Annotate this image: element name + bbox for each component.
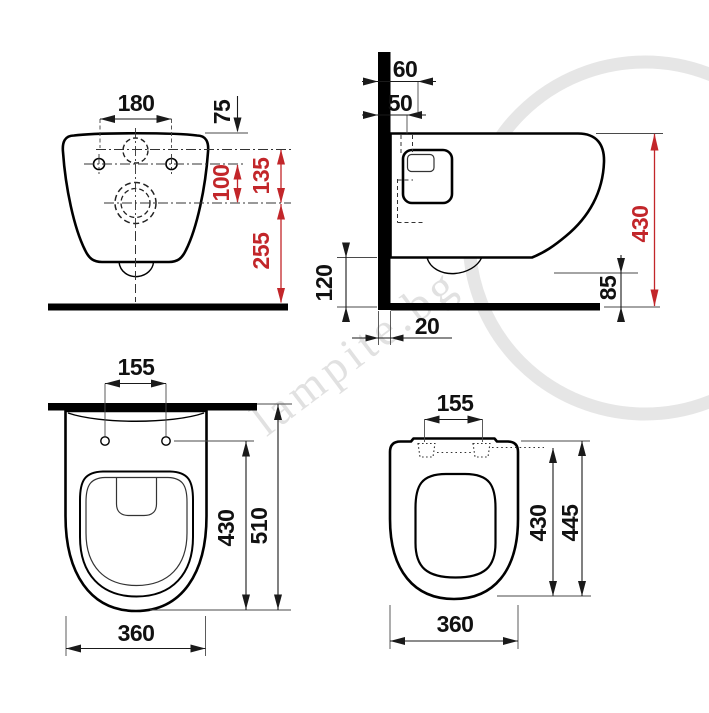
dim-60-arrow-left — [363, 78, 378, 86]
dim-360s-label: 360 — [437, 611, 474, 637]
dim-155s-arrow-right — [468, 416, 483, 424]
flush-connection-box — [403, 150, 452, 203]
dim-50-arrow-left — [363, 111, 378, 119]
dim-85-arrow-bottom — [617, 307, 625, 322]
dim-75-label: 75 — [209, 99, 235, 124]
dim-255-arrow-top — [277, 205, 285, 220]
technical-drawing-page: lampite.bg 180 75 — [0, 0, 709, 713]
dim-135-arrow-top — [277, 150, 285, 165]
dim-20-label: 20 — [415, 313, 440, 339]
dim-360s-arrow-left — [390, 637, 405, 645]
dim-50-label: 50 — [388, 90, 413, 116]
dim-100-arrow-top — [234, 165, 242, 180]
dim-120-label: 120 — [311, 265, 337, 302]
toilet-dimension-diagram: lampite.bg 180 75 — [0, 0, 709, 713]
dim-155b-label: 155 — [118, 354, 156, 380]
dim-60-arrow-right — [418, 78, 433, 86]
dim-445-label: 445 — [557, 504, 583, 542]
floor-section — [391, 303, 601, 311]
dim-120-arrow-top — [342, 243, 350, 258]
dim-60-label: 60 — [393, 56, 418, 82]
dim-255-label: 255 — [248, 232, 274, 270]
dim-445-arrow-bottom — [578, 581, 586, 596]
dim-135-arrow-bottom — [277, 188, 285, 203]
dim-155b-arrow-left — [105, 380, 120, 388]
wall-line-top — [48, 403, 257, 411]
dim-510-label: 510 — [246, 508, 272, 545]
dim-120-arrow-bottom — [342, 307, 350, 322]
seat-outline — [390, 439, 518, 600]
dim-360s-arrow-right — [503, 637, 518, 645]
front-view: 180 75 100 135 255 — [48, 90, 291, 311]
dim-155s-label: 155 — [437, 390, 475, 416]
dim-430t-arrow-top — [549, 448, 557, 463]
dim-360b-arrow-right — [191, 645, 206, 653]
dim-155b-arrow-right — [151, 380, 166, 388]
top-view-seat: 155 430 445 360 — [390, 390, 591, 649]
floor-line — [48, 304, 288, 311]
outlet-bump — [119, 262, 154, 277]
dim-430b-label: 430 — [213, 510, 239, 547]
dim-430b-arrow-bottom — [242, 595, 250, 610]
dim-180-arrow-right — [157, 115, 172, 123]
dim-85-arrow-top — [617, 258, 625, 273]
dim-135-label: 135 — [248, 157, 274, 195]
dim-445-arrow-top — [578, 441, 586, 456]
dim-510-arrow-bottom — [274, 595, 282, 610]
dim-180-label: 180 — [118, 90, 155, 116]
dim-180-arrow-left — [100, 115, 115, 123]
dim-255-arrow-bottom — [277, 288, 285, 303]
dim-430b-arrow-top — [242, 442, 250, 457]
dim-430s-arrow-top — [651, 134, 659, 151]
dim-120-extensions — [337, 258, 377, 308]
dim-100-label: 100 — [208, 165, 234, 202]
dim-100-arrow-bottom — [234, 188, 242, 203]
dim-360b-label: 360 — [118, 620, 155, 646]
dim-430t-label: 430 — [525, 505, 551, 542]
dim-360b-arrow-left — [66, 645, 81, 653]
dim-430s-arrow-bottom — [651, 290, 659, 307]
dim-430s-label: 430 — [627, 206, 653, 243]
dim-430t-arrow-bottom — [549, 581, 557, 596]
dim-85-label: 85 — [595, 275, 621, 300]
dim-155s-arrow-left — [425, 416, 440, 424]
